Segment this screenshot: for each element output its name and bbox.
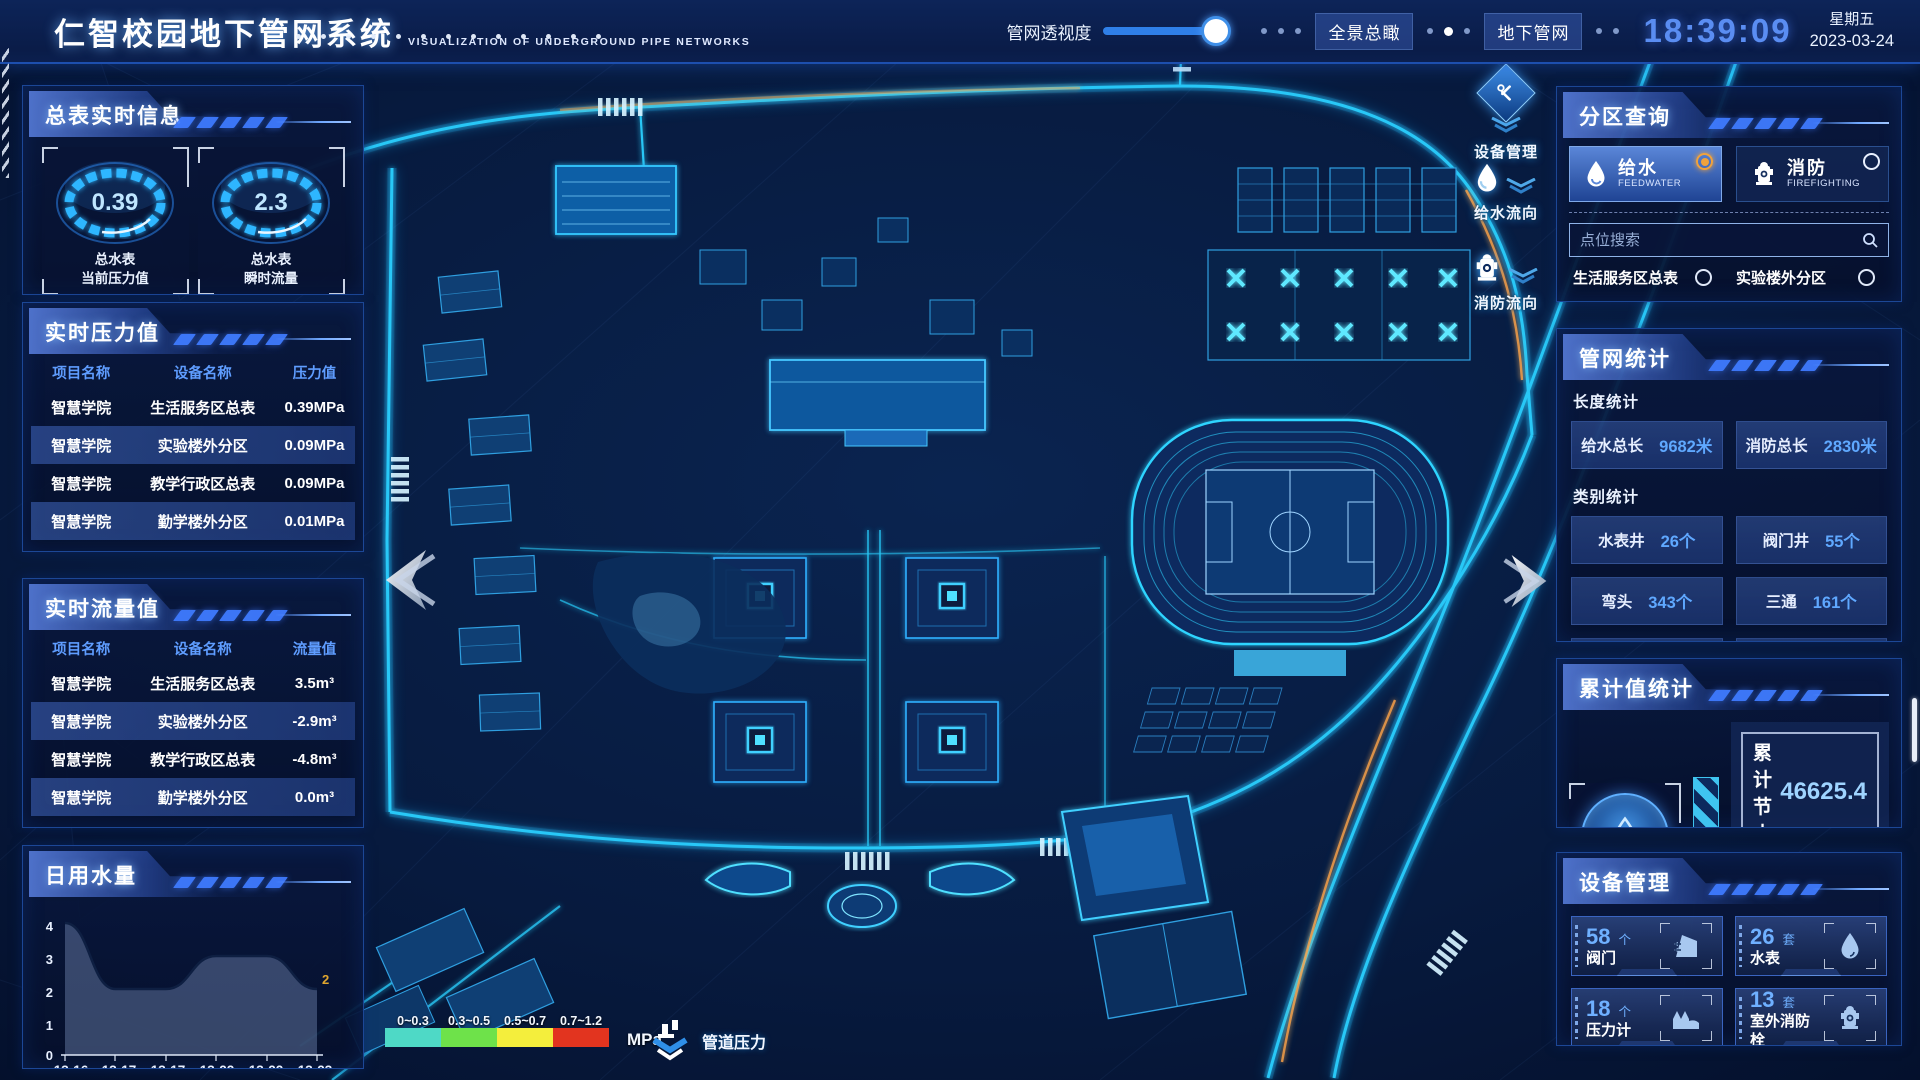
svg-text:13:22: 13:22 — [249, 1063, 284, 1069]
stat-feedwater-length: 给水总长9682米 — [1571, 421, 1723, 469]
transparency-slider[interactable] — [1103, 27, 1231, 35]
radio-selected[interactable] — [1696, 153, 1713, 170]
panel-daily-water: 日用水量 4 3 2 1 0 13:16 13:17 13:17 — [22, 845, 364, 1069]
water-drop-emblem — [1581, 793, 1669, 828]
svg-text:13:16: 13:16 — [54, 1063, 89, 1069]
pressure-table: 项目名称设备名称压力值 智慧学院生活服务区总表0.39MPa 智慧学院实验楼外分… — [31, 356, 355, 552]
legend-range-label: 0~0.3 — [385, 1014, 441, 1028]
gauge-label: 总水表 — [95, 252, 136, 267]
zone-item[interactable]: 勤学楼外分区 — [1736, 294, 1889, 302]
dot-separator — [1596, 28, 1619, 34]
edge-decoration — [2, 48, 9, 178]
legend-range-label: 0.7~1.2 — [553, 1014, 609, 1028]
clock-weekday: 星期五 — [1810, 10, 1894, 30]
tab-label: 消防 — [1787, 159, 1860, 179]
panel-zone-query: 分区查询 给水FEEDWATER 消防FIREFIGHTING 生活服务区总表 … — [1556, 86, 1902, 302]
gauge-dial: 0.39 — [42, 147, 189, 251]
map-tool-fire-flow[interactable]: 消防流向 — [1458, 252, 1554, 313]
map-tool-label: 给水流向 — [1458, 202, 1554, 223]
clock-time: 18:39:09 — [1643, 12, 1791, 50]
map-tool-label: 消防流向 — [1458, 292, 1554, 313]
overview-button[interactable]: 全景总瞰 — [1315, 13, 1413, 50]
zone-item[interactable]: 生活服务区总表 — [1573, 261, 1726, 294]
panel-flow-table: 实时流量值 项目名称设备名称流量值 智慧学院生活服务区总表3.5m³ 智慧学院实… — [22, 578, 364, 828]
slider-thumb[interactable] — [1201, 16, 1231, 46]
search-icon[interactable] — [1862, 232, 1878, 248]
hydrant-icon — [1751, 160, 1777, 188]
x-axis-ticks: 13:16 13:17 13:17 13:22 13:22 13:23 — [54, 1063, 333, 1069]
panel-cumulative: 累计值统计 累计节水46625.4 累计流量42104 ···— — [1556, 658, 1902, 828]
table-row[interactable]: 智慧学院实验楼外分区-2.9m³ — [31, 702, 355, 740]
map-tool-feedwater-flow[interactable]: 给水流向 — [1458, 162, 1554, 223]
svg-text:13:23: 13:23 — [298, 1063, 333, 1069]
stat-clipped — [1571, 638, 1723, 642]
tools-icon — [1495, 82, 1517, 104]
legend-color-bands — [385, 1028, 609, 1047]
basketball-courts — [1208, 250, 1470, 360]
panel-realtime-info: 总表实时信息 0.39 总水表当前压力值 — [22, 85, 364, 295]
section-title: 实时流量值 — [45, 593, 160, 623]
table-row[interactable]: 智慧学院砺学楼外分区0.00MPa — [31, 540, 355, 552]
device-card-pressure-gauges[interactable]: 18个压力计 — [1571, 988, 1723, 1046]
flow-table: 项目名称设备名称流量值 智慧学院生活服务区总表3.5m³ 智慧学院实验楼外分区-… — [31, 632, 355, 828]
dot-separator — [1427, 27, 1470, 36]
stat-clipped — [1736, 638, 1888, 642]
transparency-label: 管网透视度 — [1006, 19, 1091, 44]
legend-range-label: 0.3~0.5 — [441, 1014, 497, 1028]
svg-text:4: 4 — [46, 919, 54, 934]
panel-devices: 设备管理 58个阀门 26套水表 18个压力计 — [1556, 852, 1902, 1046]
pan-right-arrow[interactable] — [1496, 548, 1562, 614]
underground-button[interactable]: 地下管网 — [1484, 13, 1582, 50]
stat-valve-wells: 阀门井55个 — [1736, 516, 1888, 564]
water-drop-icon — [1474, 162, 1500, 194]
dot-separator — [1261, 28, 1301, 34]
svg-text:13:22: 13:22 — [200, 1063, 235, 1069]
table-row[interactable]: 智慧学院实验楼外分区0.09MPa — [31, 426, 355, 464]
section-title: 总表实时信息 — [45, 100, 183, 130]
device-card-valves[interactable]: 58个阀门 — [1571, 916, 1723, 976]
zone-item[interactable]: 教学行政区总表 — [1573, 294, 1726, 302]
pipe-pressure-label: 管道压力 — [702, 1029, 766, 1053]
tab-feedwater[interactable]: 给水FEEDWATER — [1569, 146, 1722, 202]
header: 仁智校园地下管网系统 VISUALIZATION OF UNDERGROUND … — [0, 0, 1920, 64]
table-row[interactable]: 智慧学院勤学楼外分区0.0m³ — [31, 778, 355, 816]
section-title: 实时压力值 — [45, 317, 160, 347]
table-row[interactable]: 智慧学院生活服务区总表0.39MPa — [31, 388, 355, 426]
gauge-label: 总水表 — [251, 252, 292, 267]
pipe-pressure-toggle[interactable]: 管道压力 — [648, 1018, 766, 1064]
hazard-stripe-divider — [1693, 777, 1719, 828]
svg-text:1: 1 — [46, 1018, 53, 1033]
pressure-gauge-icon — [1671, 1005, 1701, 1031]
pressure-legend: 0~0.3 0.3~0.5 0.5~0.7 0.7~1.2 MPa — [385, 1014, 662, 1052]
device-card-hydrants[interactable]: 13套室外消防栓 — [1735, 988, 1887, 1046]
table-header: 项目名称设备名称流量值 — [31, 632, 355, 664]
section-title: 管网统计 — [1579, 343, 1671, 373]
cumulative-saved-row: 累计节水46625.4 — [1741, 732, 1879, 828]
radio-unselected[interactable] — [1863, 153, 1880, 170]
zone-item[interactable]: 实验楼外分区 — [1736, 261, 1889, 294]
legend-range-label: 0.5~0.7 — [497, 1014, 553, 1028]
tab-label: 给水 — [1618, 159, 1681, 179]
hydrant-icon — [1837, 1004, 1863, 1032]
section-title: 日用水量 — [45, 860, 137, 890]
gauge-flow: 2.3 总水表瞬时流量 — [198, 147, 345, 295]
hydrant-icon — [1472, 252, 1502, 284]
svg-text:0: 0 — [46, 1048, 53, 1063]
stat-fire-length: 消防总长2830米 — [1736, 421, 1888, 469]
clock-date: 2023-03-24 — [1810, 30, 1894, 52]
table-row[interactable]: 智慧学院教学行政区总表0.09MPa — [31, 464, 355, 502]
category-stats-label: 类别统计 — [1573, 485, 1901, 507]
stat-water-meter-wells: 水表井26个 — [1571, 516, 1723, 564]
table-row[interactable]: 智慧学院教学行政区总表-4.8m³ — [31, 740, 355, 778]
table-row[interactable]: 智慧学院生活服务区总表3.5m³ — [31, 664, 355, 702]
section-title: 累计值统计 — [1579, 673, 1694, 703]
section-title: 分区查询 — [1579, 101, 1671, 131]
chevron-down-icon — [1506, 268, 1540, 284]
zone-list: 生活服务区总表 实验楼外分区 教学行政区总表 勤学楼外分区 砺学楼外分区 宿舍区… — [1573, 261, 1889, 302]
valve-icon — [1672, 932, 1700, 960]
dashed-divider — [1569, 212, 1889, 213]
app-title: 仁智校园地下管网系统 — [54, 9, 394, 54]
table-row[interactable]: 智慧学院砺学楼外分区2.2m³ — [31, 816, 355, 828]
search-input[interactable] — [1570, 232, 1862, 249]
pool-building — [556, 166, 676, 234]
water-drop-icon — [1608, 816, 1642, 828]
tab-firefighting[interactable]: 消防FIREFIGHTING — [1736, 146, 1889, 202]
radio-unselected[interactable] — [1695, 269, 1712, 286]
stat-elbows: 弯头343个 — [1571, 577, 1723, 625]
gym-building — [1062, 796, 1208, 920]
svg-text:13:17: 13:17 — [151, 1063, 186, 1069]
svg-text:3: 3 — [46, 952, 53, 967]
chevron-down-icon — [1504, 178, 1538, 194]
map-tool-label: 设备管理 — [1458, 141, 1554, 162]
page-scrollbar-thumb[interactable] — [1912, 698, 1917, 762]
daily-water-chart: 4 3 2 1 0 13:16 13:17 13:17 13:22 13:22 … — [31, 905, 353, 1069]
radio-unselected[interactable] — [1858, 269, 1875, 286]
section-title: 设备管理 — [1579, 867, 1671, 897]
water-emblem-card — [1569, 783, 1681, 828]
svg-text:2: 2 — [46, 985, 53, 1000]
pipe-pressure-icon — [648, 1018, 692, 1064]
panel-pipe-stats: 管网统计 长度统计 给水总长9682米 消防总长2830米 类别统计 水表井26… — [1556, 328, 1902, 642]
panel-pressure-table: 实时压力值 项目名称设备名称压力值 智慧学院生活服务区总表0.39MPa 智慧学… — [22, 302, 364, 552]
gauge-value: 2.3 — [254, 189, 287, 216]
chart-end-value: 2 — [322, 972, 329, 987]
water-meter-icon — [1838, 932, 1862, 960]
header-dots — [296, 34, 601, 39]
stat-tees: 三通161个 — [1736, 577, 1888, 625]
water-drop-icon — [1584, 160, 1608, 188]
pan-left-arrow[interactable] — [368, 542, 444, 618]
length-stats-label: 长度统计 — [1573, 390, 1901, 412]
gauge-dial: 2.3 — [198, 147, 345, 251]
search-box[interactable] — [1569, 223, 1889, 257]
dashboard-stage: 仁智校园地下管网系统 VISUALIZATION OF UNDERGROUND … — [0, 0, 1920, 1080]
svg-text:13:17: 13:17 — [102, 1063, 137, 1069]
gauge-pressure: 0.39 总水表当前压力值 — [42, 147, 189, 295]
y-axis-ticks: 4 3 2 1 0 — [46, 919, 54, 1063]
gauge-value: 0.39 — [91, 189, 138, 216]
table-row[interactable]: 智慧学院勤学楼外分区0.01MPa — [31, 502, 355, 540]
device-card-water-meters[interactable]: 26套水表 — [1735, 916, 1887, 976]
table-header: 项目名称设备名称压力值 — [31, 356, 355, 388]
map-tool-device-management[interactable]: 设备管理 — [1458, 72, 1554, 162]
